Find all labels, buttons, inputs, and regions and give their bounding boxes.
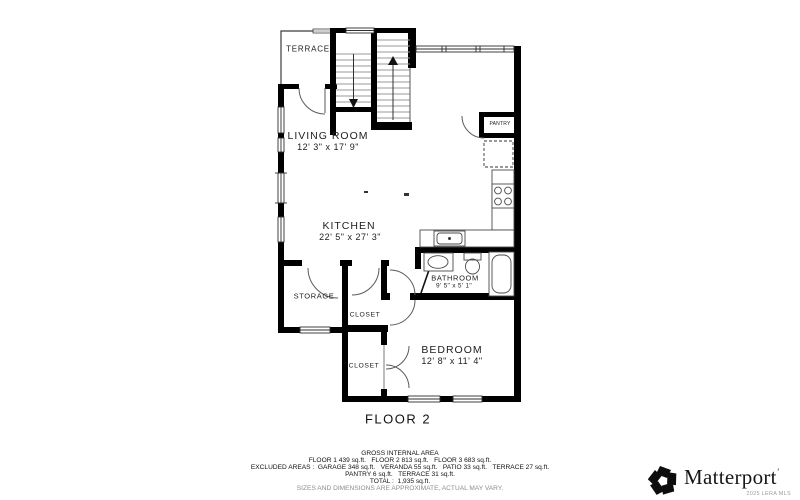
- room-label-closet-upper: CLOSET: [350, 312, 381, 319]
- area-summary-excluded: EXCLUDED AREAS : GARAGE 348 sq.ft. VERAN…: [251, 464, 549, 471]
- bedroom-double-doors: [384, 345, 409, 389]
- toilet-icon: [464, 253, 481, 274]
- terrace-outline: [281, 31, 336, 84]
- closet-upper-door: [352, 268, 379, 295]
- room-label-pantry: PANTRY: [489, 121, 510, 127]
- area-summary-excluded2: PANTRY 6 sq.ft. TERRACE 31 sq.ft.: [251, 471, 549, 478]
- refrigerator-icon: [484, 141, 513, 167]
- room-label-bedroom: BEDROOM: [421, 344, 482, 356]
- room-dims-bedroom: 12' 8" x 11' 4": [421, 356, 482, 366]
- stove-icon: [492, 184, 514, 208]
- area-summary: GROSS INTERNAL AREA FLOOR 1 439 sq.ft. F…: [251, 450, 549, 492]
- area-summary-disclaimer: SIZES AND DIMENSIONS ARE APPROXIMATE, AC…: [251, 485, 549, 492]
- room-dims-kitchen: 22' 5" x 27' 3": [319, 232, 381, 242]
- matterport-branding: Matterport’ 2025 LERA MLS: [645, 462, 795, 498]
- matterport-wordmark: Matterport’: [684, 465, 780, 490]
- room-label-storage: STORAGE: [294, 292, 335, 301]
- room-dims-bathroom: 9' 5" x 5' 1": [436, 283, 472, 290]
- kitchen-fixtures: [420, 141, 514, 247]
- bathroom-sink-icon: [424, 253, 453, 271]
- area-summary-total: TOTAL : 1,935 sq.ft.: [251, 478, 549, 485]
- terrace-door: [299, 88, 325, 114]
- stairs-down-arrow-icon: [349, 54, 358, 108]
- bathtub-icon: [489, 252, 514, 296]
- scan-artifacts: [364, 191, 409, 196]
- kitchen-sink-icon: [434, 231, 465, 246]
- area-summary-floors: FLOOR 1 439 sq.ft. FLOOR 2 813 sq.ft. FL…: [251, 457, 549, 464]
- floor-plan-page: TERRACE LIVING ROOM 12' 3" x 17' 9" KITC…: [0, 0, 800, 500]
- floor-label: FLOOR 2: [365, 412, 431, 427]
- room-dims-living-room: 12' 3" x 17' 9": [297, 142, 359, 152]
- room-label-closet-lower: CLOSET: [349, 363, 380, 370]
- room-label-living-room: LIVING ROOM: [287, 130, 368, 142]
- mls-attribution: 2025 LERA MLS: [746, 491, 791, 497]
- trademark-mark: ’: [777, 467, 780, 476]
- room-label-bathroom: BATHROOM: [431, 274, 479, 283]
- bathroom-door: [421, 270, 429, 293]
- room-label-kitchen: KITCHEN: [322, 220, 375, 232]
- matterport-logo-icon: [645, 463, 681, 499]
- area-summary-title: GROSS INTERNAL AREA: [251, 450, 549, 457]
- walls: [278, 28, 521, 402]
- room-label-terrace: TERRACE: [286, 45, 330, 54]
